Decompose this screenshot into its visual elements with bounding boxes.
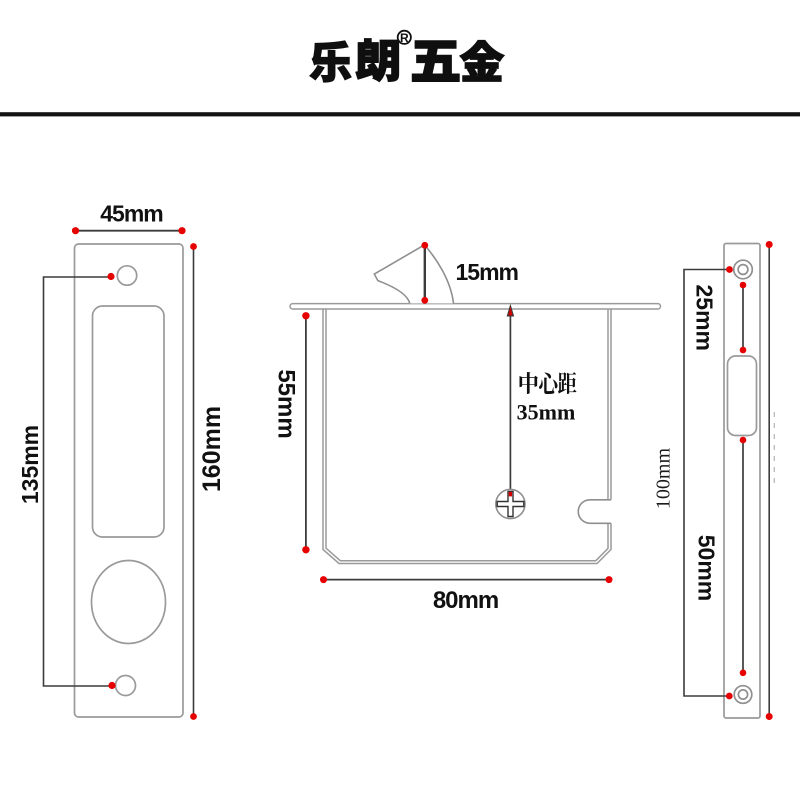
svg-text:160mm: 160mm: [198, 406, 226, 492]
svg-text:R: R: [400, 31, 409, 45]
svg-text:45mm: 45mm: [100, 201, 163, 227]
svg-text:135mm: 135mm: [17, 425, 43, 504]
svg-text:35mm: 35mm: [517, 400, 576, 425]
svg-text:15mm: 15mm: [456, 259, 519, 285]
svg-text:55mm: 55mm: [273, 369, 300, 438]
svg-text:25mm: 25mm: [692, 285, 718, 351]
svg-text:50mm: 50mm: [694, 535, 720, 601]
svg-text:100mm: 100mm: [652, 448, 674, 510]
svg-text:80mm: 80mm: [433, 587, 498, 614]
